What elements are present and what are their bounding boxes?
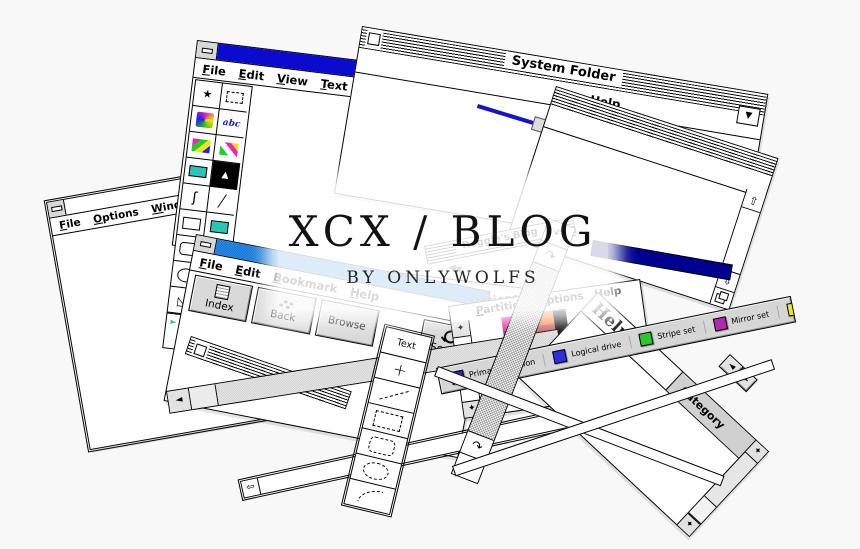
- system-menu-dash-icon: [199, 241, 211, 248]
- category-vertical-scrollbar[interactable]: ✦ ✦: [677, 440, 768, 536]
- brush-tool-icon[interactable]: ▲: [210, 161, 240, 190]
- legend-color-swatch: [639, 331, 654, 346]
- document-icon: [214, 284, 230, 300]
- menu-edit[interactable]: Edit: [234, 262, 262, 281]
- legend-item: Stripe set: [639, 321, 707, 347]
- line-width-arrow-icon: ►: [170, 317, 177, 328]
- scroll-thumb[interactable]: [189, 384, 219, 409]
- legend-item: Volume set: [786, 296, 796, 317]
- text-tool-icon[interactable]: abc: [217, 109, 247, 138]
- menu-file[interactable]: File: [198, 255, 224, 273]
- menu-file[interactable]: File: [202, 61, 227, 78]
- eraser-tool-icon[interactable]: [213, 135, 243, 164]
- scroll-left-icon[interactable]: ◄: [167, 388, 192, 412]
- close-box[interactable]: [193, 343, 207, 357]
- rectangle-tool-icon[interactable]: [177, 209, 207, 238]
- system-menu-dash-icon: [50, 205, 62, 212]
- close-box[interactable]: [367, 32, 381, 46]
- color-eraser-tool-icon[interactable]: [187, 132, 217, 161]
- system-menu-dash-icon: [201, 47, 213, 53]
- menu-text[interactable]: Text: [320, 76, 349, 93]
- pick-tool-icon[interactable]: [220, 83, 250, 112]
- menu-file[interactable]: File: [58, 216, 81, 232]
- dropdown-button[interactable]: ▼: [736, 105, 761, 126]
- mac-vertical-scrollbar[interactable]: ⇧ ⇩: [709, 189, 765, 309]
- blog-title: XCX / BLOG: [289, 207, 598, 256]
- blog-banner: XCX / BLOG BY ONLYWOLFS: [278, 184, 608, 311]
- menu-view[interactable]: View: [276, 71, 309, 89]
- legend-color-swatch: [552, 349, 567, 364]
- system-menu-box[interactable]: [47, 200, 66, 218]
- system-menu-box[interactable]: [196, 41, 219, 59]
- airbrush-tool-icon[interactable]: [190, 106, 220, 135]
- blog-subtitle: BY ONLYWOLFS: [346, 268, 539, 288]
- paint-roller-tool-icon[interactable]: [183, 158, 213, 187]
- menu-edit[interactable]: Edit: [238, 66, 265, 83]
- line-tool-icon[interactable]: ╱: [207, 187, 237, 216]
- freeform-pick-tool-icon[interactable]: ★: [193, 80, 223, 109]
- legend-color-swatch: [713, 316, 728, 331]
- legend-item: Mirror set: [713, 306, 781, 332]
- curve-tool-icon[interactable]: ʃ: [180, 183, 210, 212]
- index-button[interactable]: Index: [188, 275, 253, 323]
- legend-color-swatch: [786, 301, 796, 316]
- collage-stage: File Options Window File Edit View Text …: [0, 0, 860, 549]
